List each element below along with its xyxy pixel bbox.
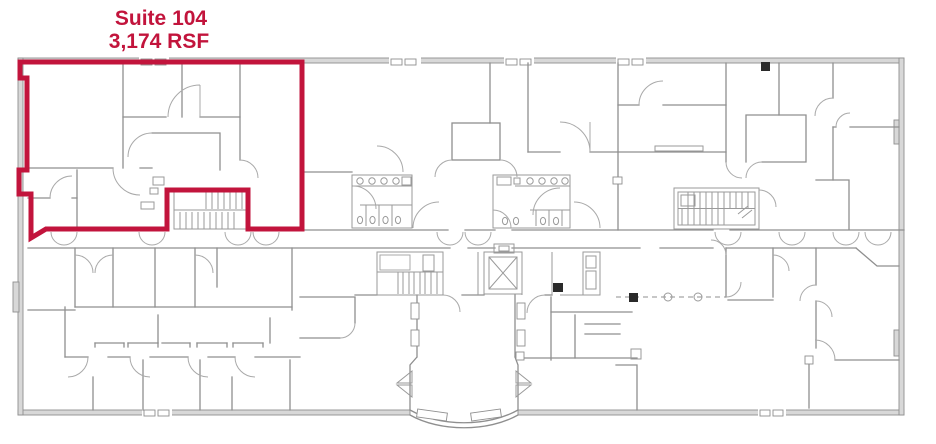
restroom-left (352, 175, 412, 228)
stairwell-east (674, 188, 759, 229)
suite-label: Suite 104 (115, 7, 208, 30)
suite-area-label: 3,174 RSF (109, 30, 210, 53)
entrance-vestibule (397, 371, 531, 428)
restroom-right (493, 175, 570, 228)
suite-104-outline (19, 62, 302, 238)
demolition-line (616, 293, 726, 302)
elevator-shaft (478, 244, 522, 295)
interior-walls-bottom (28, 248, 899, 410)
exterior-walls (13, 57, 904, 417)
floor-plan-page: Suite 104 3,174 RSF (0, 0, 936, 444)
black-marker (761, 62, 770, 71)
interior-walls-top (28, 63, 904, 230)
utility-shaft (552, 252, 600, 295)
stairwell-lobby (377, 252, 443, 295)
stairwell-suite (174, 192, 248, 229)
floor-plan: Suite 104 3,174 RSF (0, 0, 936, 444)
